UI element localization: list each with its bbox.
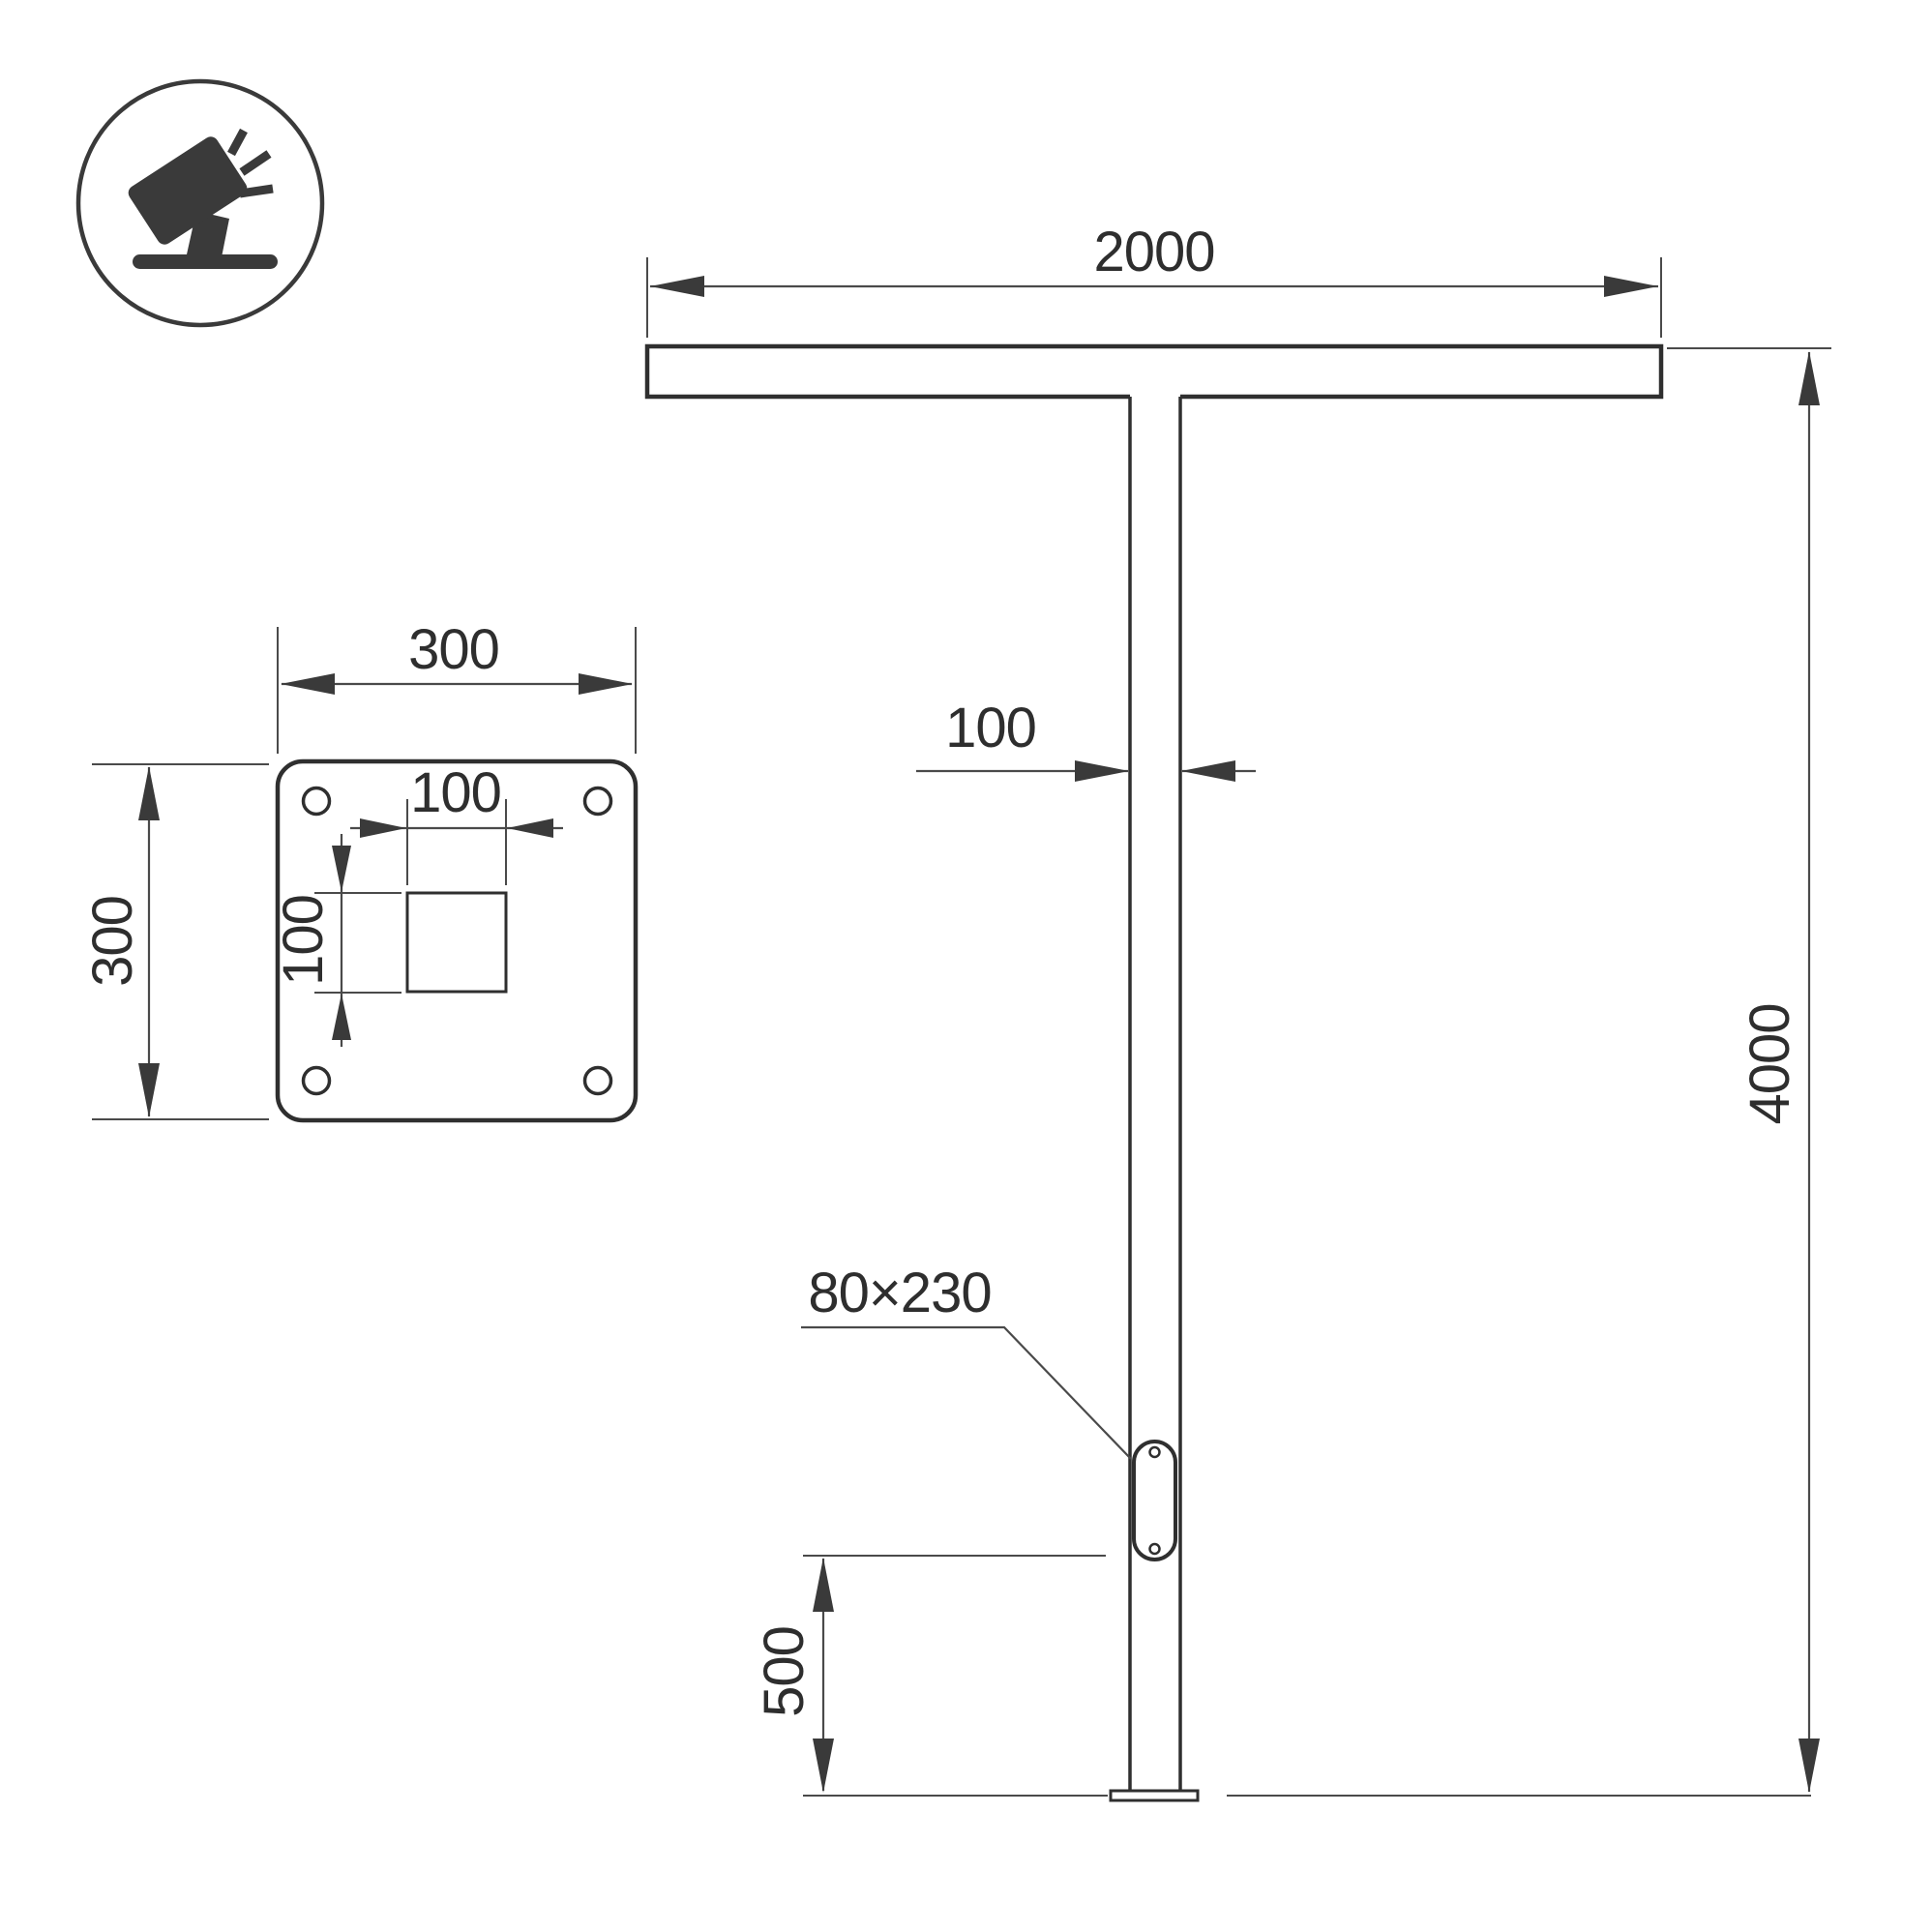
arrow-up	[138, 766, 160, 820]
arrow-left	[1181, 760, 1235, 782]
arrow-down	[138, 1063, 160, 1117]
pole-fill	[1130, 393, 1180, 1792]
pole-dimension-drawing: 2000 100 4000 80×230	[0, 0, 1932, 1932]
plate-width-label: 300	[408, 618, 499, 681]
arrow-right	[1075, 760, 1129, 782]
arrow-right	[1604, 276, 1658, 297]
icon-light-ray-2	[242, 154, 269, 172]
pole-height-label: 4000	[1739, 1003, 1801, 1124]
dimension-hatch-height: 500	[753, 1556, 1106, 1793]
cutout-width-label: 100	[410, 761, 501, 824]
pole-base-flange	[1111, 1791, 1198, 1800]
dimension-bar-width: 2000	[647, 221, 1661, 338]
bar-width-label: 2000	[1093, 221, 1214, 283]
arrow-up	[1798, 351, 1820, 405]
hatch-size-label: 80×230	[808, 1262, 991, 1324]
bolt-hole-bottom-left	[304, 1068, 330, 1094]
arrow-left	[650, 276, 704, 297]
icon-light-ray-3	[240, 189, 273, 193]
base-plate-view: 300 300 100 100	[81, 618, 636, 1120]
plate-height-label: 300	[81, 896, 144, 987]
hatch-height-label: 500	[753, 1626, 816, 1717]
bolt-hole-top-right	[585, 788, 611, 815]
pole-elevation-view: 2000 100 4000 80×230	[647, 221, 1831, 1800]
dimension-pole-height: 4000	[1667, 348, 1831, 1793]
icon-base-bar	[133, 254, 278, 269]
arrow-right	[579, 673, 633, 695]
floodlight-icon	[78, 81, 322, 325]
arrow-down	[1798, 1739, 1820, 1793]
service-hatch	[1134, 1442, 1175, 1560]
arrow-left	[281, 673, 335, 695]
icon-light-ray-1	[231, 131, 244, 154]
dimension-plate-height: 300	[81, 764, 269, 1119]
dimension-plate-width: 300	[278, 618, 636, 754]
technical-drawing-page: 2000 100 4000 80×230	[0, 0, 1932, 1932]
cutout-height-label: 100	[272, 895, 335, 986]
bolt-hole-top-left	[304, 788, 330, 815]
arrow-up	[813, 1558, 834, 1612]
arrow-down	[813, 1739, 834, 1793]
luminaire-bar	[647, 346, 1661, 397]
pole-width-label: 100	[945, 697, 1036, 759]
hatch-callout: 80×230	[801, 1262, 1131, 1459]
dimension-pole-width: 100	[916, 697, 1256, 782]
bolt-hole-bottom-right	[585, 1068, 611, 1094]
